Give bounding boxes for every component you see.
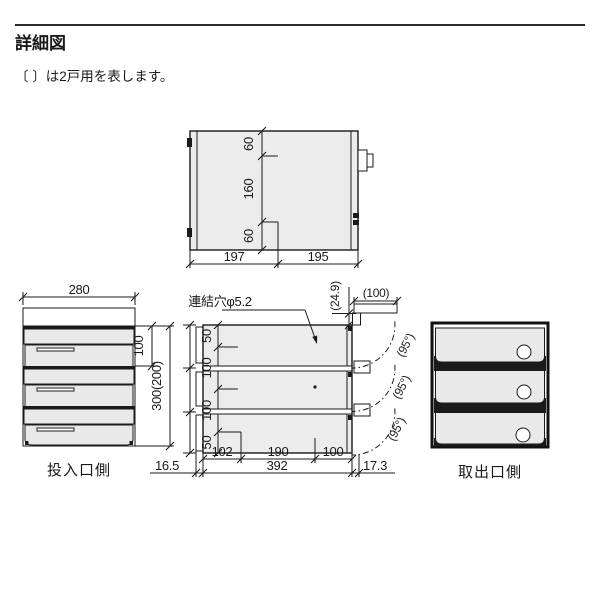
lock-knob-3 xyxy=(516,428,530,442)
top-view-body xyxy=(190,131,358,250)
page-title: 詳細図 xyxy=(15,33,66,53)
dim-side-190: 190 xyxy=(268,444,289,459)
open-door-stub-3 xyxy=(354,404,370,416)
front-view-height-dimensions: 100 300(200) xyxy=(131,322,174,450)
side-view-flap-profiles xyxy=(196,327,203,451)
dim-side-100c: 100 xyxy=(323,444,344,459)
dim-door-depth: (100) xyxy=(363,286,390,300)
dim-side-173: 17.3 xyxy=(363,458,387,473)
dim-angle-2: (95°) xyxy=(390,373,414,402)
side-view: 連結穴φ5.2 50 100 100 50 xyxy=(150,281,418,477)
open-door-hinge-stub xyxy=(353,313,361,325)
dim-angle-1: (95°) xyxy=(394,331,418,360)
dim-side-392: 392 xyxy=(267,458,288,473)
dim-top-60b: 60 xyxy=(241,229,256,243)
rear-view: 取出口側 xyxy=(432,323,548,481)
dim-side-100b: 100 xyxy=(199,400,214,421)
top-view-lock-tab xyxy=(358,150,373,171)
open-door-stub-2 xyxy=(354,361,370,373)
dim-side-50a: 50 xyxy=(199,329,214,343)
dim-top-195: 195 xyxy=(308,249,329,264)
top-view: 60 160 60 197 195 xyxy=(186,127,373,268)
rear-view-doors xyxy=(436,328,545,444)
dim-side-100a: 100 xyxy=(199,358,214,379)
dim-top-197: 197 xyxy=(224,249,245,264)
open-door-top xyxy=(354,304,397,313)
side-view-hole-dot xyxy=(313,385,316,388)
detail-drawing: 詳細図 〔 〕は2戸用を表します。 60 160 60 xyxy=(0,0,600,600)
dim-door-rise: (24.9) xyxy=(328,281,342,311)
dim-front-280: 280 xyxy=(69,282,90,297)
front-view-units xyxy=(23,326,135,445)
side-view-outer-brackets xyxy=(183,321,196,457)
dim-top-160: 160 xyxy=(241,179,256,200)
lock-knob-1 xyxy=(517,345,531,359)
front-view-width-dimension: 280 xyxy=(19,282,139,305)
lock-knob-2 xyxy=(517,385,531,399)
dim-front-100: 100 xyxy=(131,336,146,357)
page-note: 〔 〕は2戸用を表します。 xyxy=(15,69,173,84)
top-view-depth-dimension: 197 195 xyxy=(186,249,362,268)
hole-note-text: 連結穴φ5.2 xyxy=(188,294,251,309)
dim-angle-3: (95°) xyxy=(385,415,409,444)
mail-unit xyxy=(23,406,135,445)
dim-side-165: 16.5 xyxy=(155,458,179,473)
dim-front-300: 300(200) xyxy=(149,361,164,411)
side-view-open-doors: (95°) (95°) (95°) xyxy=(352,304,418,455)
dim-top-60a: 60 xyxy=(241,137,256,151)
header: 詳細図 〔 〕は2戸用を表します。 xyxy=(15,25,585,84)
rear-view-label: 取出口側 xyxy=(458,464,522,481)
front-view: 280 xyxy=(19,282,174,479)
dim-side-102: 102 xyxy=(212,444,233,459)
front-view-label: 投入口側 xyxy=(47,462,111,479)
